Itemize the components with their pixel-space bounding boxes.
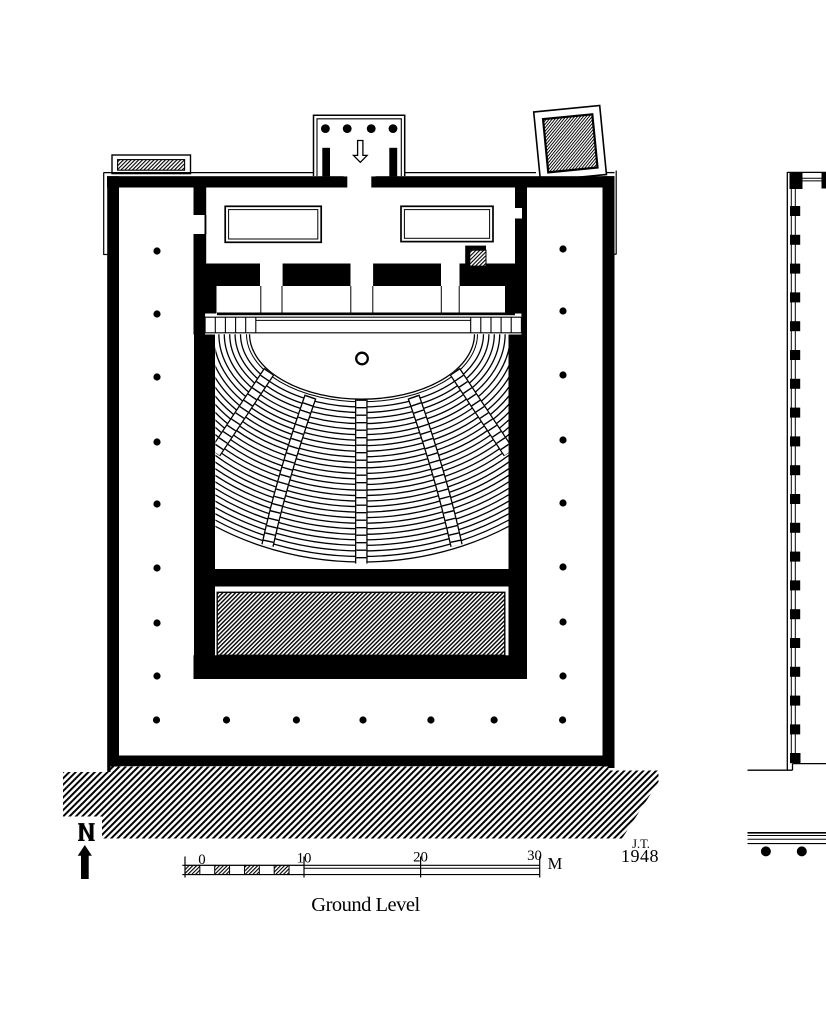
svg-text:10: 10 xyxy=(297,851,312,867)
svg-text:M: M xyxy=(548,854,563,873)
svg-text:30: 30 xyxy=(527,848,542,864)
svg-text:20: 20 xyxy=(413,850,428,866)
svg-text:0: 0 xyxy=(198,852,205,868)
svg-text:Ground Level: Ground Level xyxy=(311,894,420,916)
svg-text:1948: 1948 xyxy=(621,846,659,866)
